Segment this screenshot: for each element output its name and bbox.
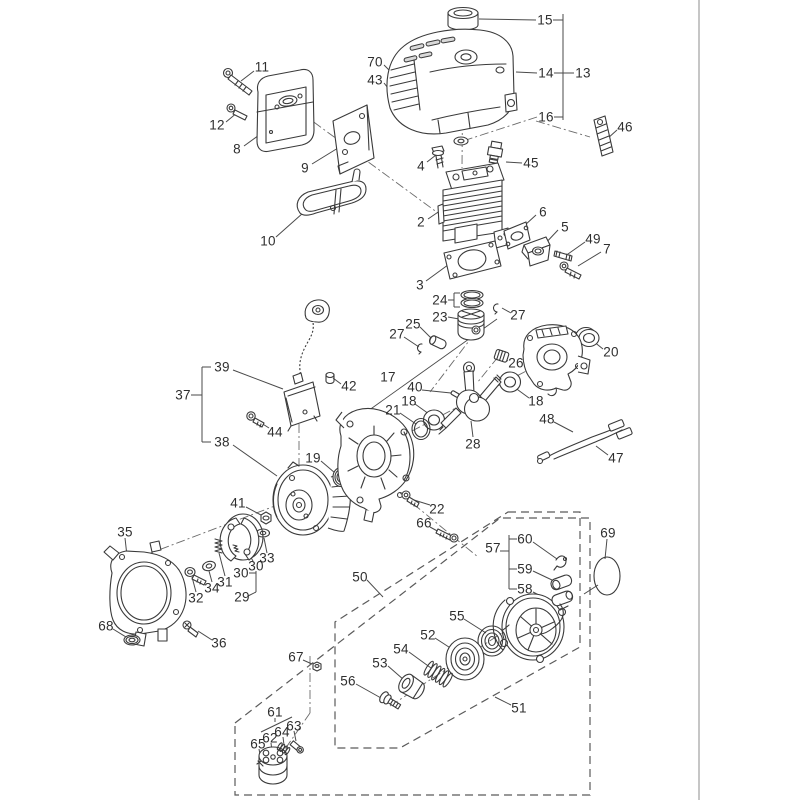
cover-washer-illustration (454, 137, 468, 145)
engine-cover-illustration (387, 29, 517, 134)
washer-34-illustration (202, 560, 217, 572)
ignition-coil-illustration (284, 300, 329, 431)
rope-guide-illustration (550, 574, 573, 592)
parts-diagram-page: 1514131646704311128910445265497324232725… (0, 0, 800, 800)
oil-seal-illustration (412, 419, 430, 440)
piston-pin-clip2-illustration (417, 344, 422, 354)
nut-67-illustration (313, 662, 321, 671)
flywheel-nut-illustration (261, 512, 271, 524)
clutch-illustration (220, 514, 263, 561)
piston-pin-clip-illustration (493, 304, 498, 314)
starter-screw-illustration (378, 690, 403, 712)
needle-bearing-illustration (494, 349, 509, 363)
clutch-bolt-illustration (185, 568, 206, 586)
piston-rings-illustration (461, 291, 483, 308)
cylinder-gasket-illustration (444, 241, 501, 279)
muffler-guard-illustration (297, 169, 366, 215)
muffler-bolt-long-illustration (224, 69, 253, 96)
coil-bolt-illustration (247, 412, 264, 427)
muffler-bolt-short-illustration (227, 104, 247, 120)
cylinder-illustration (438, 163, 510, 248)
bearing-18-right-illustration (500, 372, 521, 392)
washer-68-illustration (124, 635, 140, 645)
coil-bushing-illustration (326, 373, 334, 384)
insulator-bolt-illustration (560, 262, 581, 279)
muffler-gasket-illustration (333, 105, 374, 174)
rope-end-illustration (551, 590, 574, 608)
cover-bolt-illustration (183, 621, 198, 637)
lead-wires-illustration (537, 419, 633, 463)
fan-cover-illustration (104, 541, 186, 646)
grip-outline-illustration (594, 557, 620, 595)
crankcase-bolt-illustration (402, 491, 419, 507)
exploded-diagram-artwork (0, 0, 800, 800)
piston-illustration (458, 309, 484, 340)
muffler-illustration (257, 69, 314, 151)
crankshaft-illustration (439, 362, 501, 434)
ratchet-cam-illustration (396, 672, 428, 702)
bearing-18-left-illustration (424, 410, 445, 430)
piston-pin-illustration (428, 335, 447, 350)
rotor-screw-illustration (290, 740, 305, 754)
starter-bolt-illustration (436, 529, 458, 542)
